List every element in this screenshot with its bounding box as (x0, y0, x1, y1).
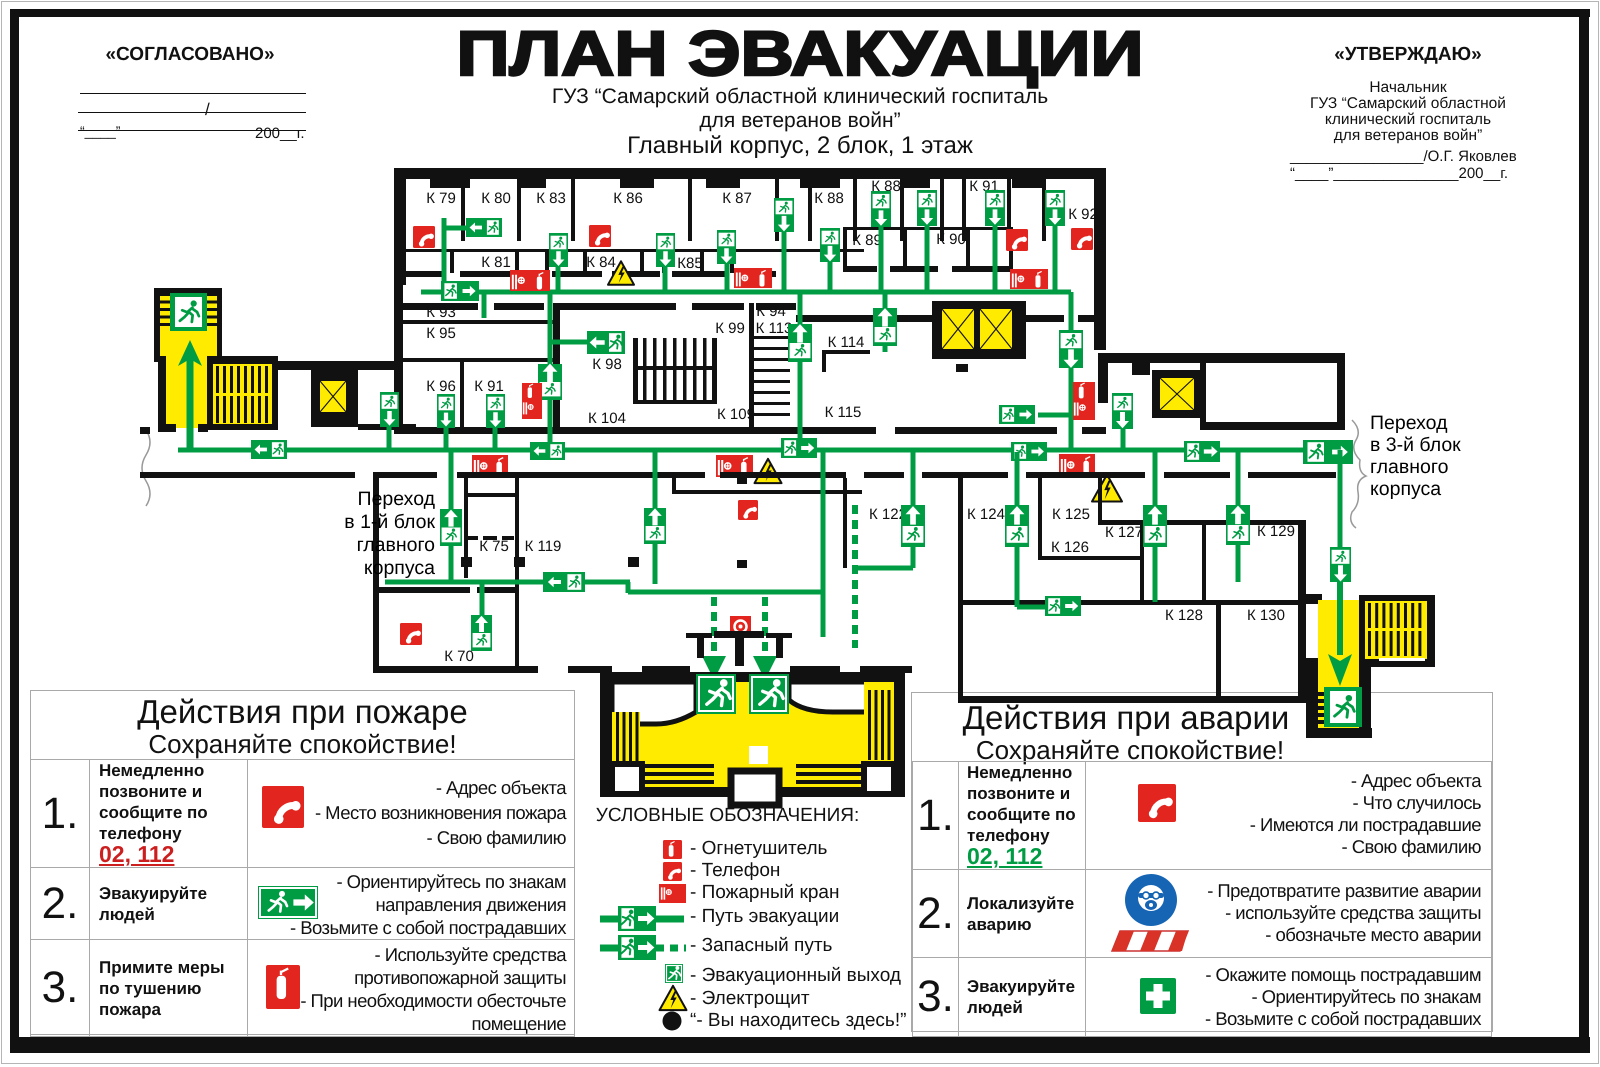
svg-text:К 75: К 75 (479, 538, 509, 555)
svg-text:К 128: К 128 (1165, 607, 1203, 624)
svg-text:К 96: К 96 (426, 378, 456, 395)
svg-text:К 83: К 83 (536, 190, 566, 207)
svg-text:корпуса: корпуса (1370, 478, 1441, 500)
svg-text:К 86: К 86 (613, 190, 643, 207)
svg-text:К 99: К 99 (715, 320, 745, 337)
svg-text:К 80: К 80 (481, 190, 511, 207)
svg-text:К 94: К 94 (756, 303, 786, 320)
svg-text:К 88: К 88 (814, 190, 844, 207)
svg-text:К 124: К 124 (967, 506, 1005, 523)
svg-text:К 70: К 70 (444, 648, 474, 665)
svg-text:Переход: Переход (358, 488, 436, 510)
svg-text:в 3-й блок: в 3-й блок (1370, 434, 1461, 456)
svg-text:К 114: К 114 (828, 334, 865, 351)
svg-text:К 93: К 93 (426, 304, 456, 321)
svg-text:К 113: К 113 (756, 320, 793, 337)
svg-text:К 79: К 79 (426, 190, 456, 207)
svg-text:К 81: К 81 (481, 254, 511, 271)
svg-text:К 98: К 98 (592, 356, 622, 373)
svg-text:К 119: К 119 (525, 538, 562, 555)
svg-text:главного: главного (1370, 456, 1449, 478)
svg-text:К 104: К 104 (588, 410, 626, 427)
svg-text:Переход: Переход (1370, 412, 1448, 434)
svg-text:корпуса: корпуса (364, 557, 435, 579)
svg-text:К 115: К 115 (825, 404, 862, 421)
svg-text:К 95: К 95 (426, 325, 456, 342)
svg-text:К 92: К 92 (1068, 206, 1098, 223)
svg-text:К 130: К 130 (1247, 607, 1285, 624)
svg-text:К 89: К 89 (852, 232, 882, 249)
svg-text:К 90: К 90 (936, 231, 966, 248)
svg-text:К85: К85 (677, 255, 702, 272)
svg-text:К 109: К 109 (717, 406, 755, 423)
svg-text:К 91: К 91 (474, 378, 504, 395)
svg-text:К 127: К 127 (1105, 524, 1143, 541)
svg-text:К 84: К 84 (586, 254, 616, 271)
svg-text:К 125: К 125 (1052, 506, 1090, 523)
svg-text:в 1-й блок: в 1-й блок (344, 511, 435, 533)
svg-text:К 126: К 126 (1051, 539, 1089, 556)
svg-text:К 129: К 129 (1257, 523, 1295, 540)
svg-text:К 87: К 87 (722, 190, 752, 207)
svg-text:главного: главного (357, 534, 436, 556)
